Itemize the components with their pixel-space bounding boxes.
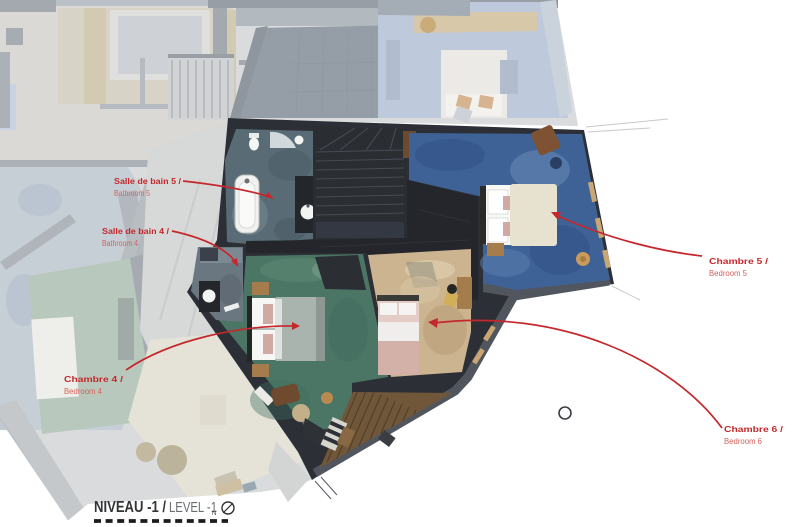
svg-text:Chambre 6 /: Chambre 6 / [724, 424, 784, 434]
svg-text:Bathroom 5: Bathroom 5 [114, 189, 150, 198]
svg-text:NIVEAU -1 /: NIVEAU -1 / [94, 499, 166, 516]
svg-text:Chambre 5 /: Chambre 5 / [709, 256, 769, 266]
svg-text:Bedroom 4: Bedroom 4 [64, 387, 103, 396]
svg-text:LEVEL -1: LEVEL -1 [169, 499, 217, 516]
svg-text:Chambre 4 /: Chambre 4 / [64, 374, 124, 384]
svg-text:Bedroom 5: Bedroom 5 [709, 269, 748, 278]
svg-text:Salle de bain 5 /: Salle de bain 5 / [114, 176, 182, 186]
svg-text:N: N [212, 511, 216, 517]
svg-text:Bedroom 6: Bedroom 6 [724, 437, 763, 446]
svg-text:Salle de bain 4 /: Salle de bain 4 / [102, 226, 170, 236]
svg-text:Bathroom 4: Bathroom 4 [102, 239, 138, 248]
